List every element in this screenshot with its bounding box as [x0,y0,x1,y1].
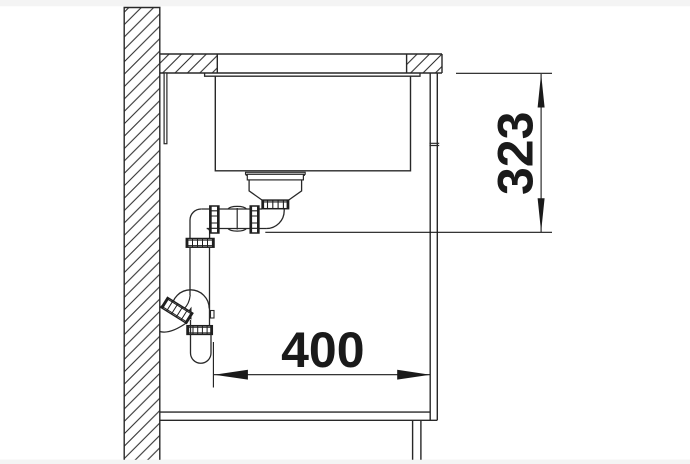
svg-text:400: 400 [281,322,364,378]
svg-text:323: 323 [488,112,544,195]
